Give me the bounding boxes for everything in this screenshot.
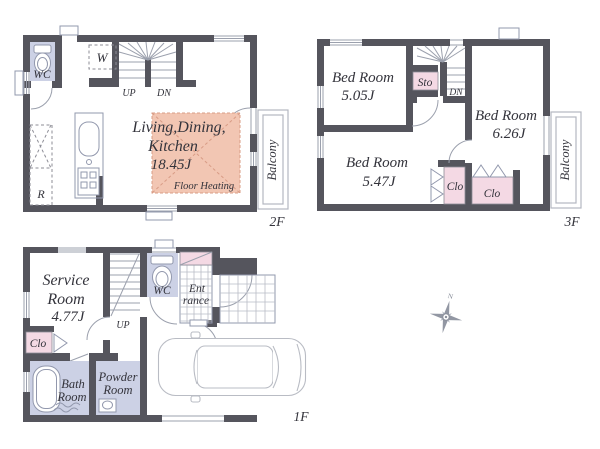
stove-icon bbox=[78, 168, 99, 195]
r-label: R bbox=[36, 187, 45, 201]
closet2-3f: Clo bbox=[472, 165, 513, 204]
powder-room: Powder Room bbox=[96, 361, 140, 415]
floor-label-1f: 1F bbox=[294, 409, 310, 424]
closet-w-2f: W bbox=[89, 45, 116, 69]
floor-label-3f: 3F bbox=[564, 214, 581, 229]
bath-room: Bath Room bbox=[30, 361, 89, 415]
service-room-size: 4.77J bbox=[52, 309, 86, 325]
bedroom1-size: 5.05J bbox=[342, 88, 376, 104]
bedroom2-label: Bed Room bbox=[475, 108, 537, 124]
wc-label-1f: WC bbox=[153, 285, 171, 297]
entrance-label-line2: rance bbox=[183, 295, 209, 307]
door-arc-wc-1f bbox=[150, 297, 177, 324]
kitchen-counter bbox=[75, 113, 103, 198]
compass-north-label: N bbox=[447, 292, 454, 301]
service-room-label-line1: Service bbox=[42, 272, 89, 289]
entrance-label-line1: Ent bbox=[188, 283, 206, 295]
side-mirror-icon bbox=[191, 396, 200, 402]
closet-w-label: W bbox=[97, 50, 109, 65]
sink-icon bbox=[99, 399, 116, 412]
door-arc-wc-2f bbox=[31, 88, 52, 109]
staircase-1f: UP bbox=[110, 254, 140, 331]
dn-label-2f: DN bbox=[156, 88, 172, 99]
ldk-label-line1: Living,Dining, bbox=[131, 119, 225, 136]
closet1-3f: Clo bbox=[431, 167, 465, 204]
bedroom3-size: 5.47J bbox=[363, 174, 397, 190]
folding-door-icon bbox=[54, 334, 67, 352]
clo2-label: Clo bbox=[484, 188, 501, 200]
service-room-label-line2: Room bbox=[46, 291, 84, 308]
sto-label: Sto bbox=[418, 77, 433, 89]
compass-icon: N bbox=[426, 289, 467, 336]
refrigerator-space: R bbox=[30, 125, 52, 205]
floor-heating-label: Floor Heating bbox=[173, 181, 234, 192]
car-icon bbox=[159, 332, 306, 402]
clo-label-1f: Clo bbox=[30, 338, 47, 350]
up-label-2f: UP bbox=[122, 88, 135, 99]
bath-label-line1: Bath bbox=[61, 377, 85, 391]
folding-door-icon bbox=[490, 165, 506, 177]
side-mirror-icon bbox=[191, 332, 200, 338]
closet-1f: Clo bbox=[26, 332, 67, 353]
floor-plan-3f: Sto DN Clo Clo Bed Room 5.05J Bed bbox=[317, 28, 581, 229]
porch-tiles bbox=[220, 275, 275, 323]
clo1-label: Clo bbox=[447, 181, 464, 193]
folding-door-icon bbox=[431, 186, 443, 202]
door-arc-hall-3f bbox=[412, 100, 438, 126]
wc-label-2f: WC bbox=[33, 69, 51, 81]
wc-room-2f: WC bbox=[30, 42, 55, 81]
floor-label-2f: 2F bbox=[270, 214, 286, 229]
bath-label-line2: Room bbox=[56, 390, 86, 404]
dn-label-3f: DN bbox=[448, 88, 463, 98]
ldk-label-line2: Kitchen bbox=[147, 138, 198, 155]
balcony-2f: Balcony bbox=[258, 110, 288, 209]
balcony-label-3f: Balcony bbox=[558, 139, 572, 180]
ldk-label-size: 18.45J bbox=[151, 157, 193, 173]
door-arc-bedroom2 bbox=[449, 140, 472, 163]
folding-door-icon bbox=[431, 169, 443, 185]
floor-plan-2f: WC W UP DN bbox=[15, 26, 288, 229]
bedroom1-label: Bed Room bbox=[332, 70, 394, 86]
kitchen-sink-icon bbox=[79, 122, 99, 156]
toilet-icon-1f bbox=[151, 256, 173, 288]
powder-label-line1: Powder bbox=[98, 370, 138, 384]
walls-3f bbox=[317, 39, 550, 211]
floor-plan-drawing: WC W UP DN bbox=[0, 0, 600, 449]
bathtub-icon bbox=[33, 366, 60, 412]
floor-plan-page: WC W UP DN bbox=[0, 0, 600, 449]
powder-label-line2: Room bbox=[102, 383, 132, 397]
door-arc-service bbox=[87, 317, 110, 340]
balcony-3f: Balcony bbox=[551, 112, 581, 208]
door-line-bath bbox=[70, 354, 88, 361]
up-label-1f: UP bbox=[116, 320, 129, 331]
shoe-cabinet bbox=[180, 252, 212, 265]
storage-room: Sto bbox=[413, 72, 438, 90]
floor-plan-1f: WC UP Service Room 4.77J Ent rance Clo bbox=[23, 240, 309, 424]
folding-door-icon bbox=[473, 165, 489, 177]
bedroom2-size: 6.26J bbox=[493, 126, 527, 142]
bedroom3-label: Bed Room bbox=[346, 155, 408, 171]
wc-room-1f: WC bbox=[147, 253, 178, 297]
balcony-label-2f: Balcony bbox=[265, 139, 279, 180]
entrance-step bbox=[190, 320, 207, 326]
